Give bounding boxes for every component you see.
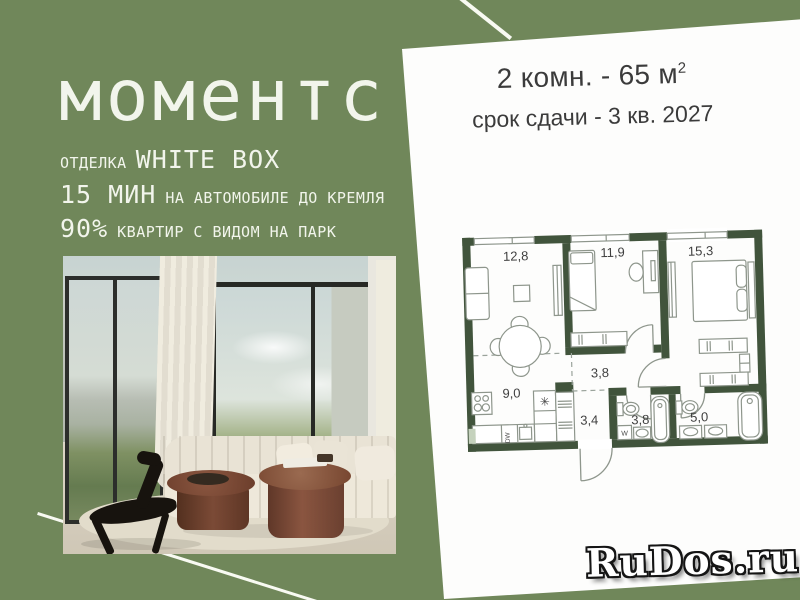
offer-panel-content: 2 комн. - 65 м2 срок сдачи - 3 кв. 2027 [398, 20, 800, 591]
ad-banner: моментс ОТДЕЛКА WHITE BOX 15 МИН НА АВТО… [0, 0, 800, 600]
feature-drive-time: 15 МИН НА АВТОМОБИЛЕ ДО КРЕМЛЯ [60, 180, 385, 209]
view-value: 90% [60, 214, 108, 243]
square-meter-sup: 2 [678, 60, 687, 77]
room-area-label: 11,9 [600, 244, 625, 260]
room-area-label: 3,8 [591, 365, 609, 380]
room-area-label: 15,3 [688, 243, 714, 259]
feature-park-view: 90% КВАРТИР С ВИДОМ НА ПАРК [60, 214, 336, 243]
finish-label: ОТДЕЛКА [60, 154, 127, 172]
room-area-label: 5,0 [690, 409, 708, 424]
drive-label: НА АВТОМОБИЛЕ ДО КРЕМЛЯ [165, 189, 384, 207]
finish-value: WHITE BOX [136, 145, 280, 174]
offer-deadline: срок сдачи - 3 кв. 2027 [400, 97, 800, 135]
view-label: КВАРТИР С ВИДОМ НА ПАРК [117, 223, 336, 241]
entry-opening [578, 439, 612, 450]
washer-label: W [621, 430, 628, 437]
photo-pillow [354, 445, 396, 481]
feature-finish: ОТДЕЛКА WHITE BOX [60, 145, 280, 174]
room-area-label: 12,8 [503, 248, 529, 264]
plan-zone-dashes [473, 352, 608, 394]
photo-door-frame [113, 276, 117, 524]
dishwasher-label: DW [505, 431, 512, 443]
brand-logo: моментс [59, 60, 386, 131]
decor-line-top [460, 0, 513, 40]
room-area-label: 3,4 [580, 412, 598, 427]
room-area-label: 3,8 [631, 412, 649, 427]
floor-plan: DW W ✳ 12,8 11,9 15,3 9,0 3,8 3,4 3,8 5,… [454, 213, 782, 502]
room-area-label: 9,0 [502, 385, 520, 400]
brand-block: моментс ОТДЕЛКА WHITE BOX 15 МИН НА АВТО… [59, 40, 449, 265]
offer-title: 2 комн. - 65 м2 [399, 54, 800, 97]
photo-decor-item [317, 454, 333, 462]
boiler-symbol: ✳ [540, 395, 550, 409]
interior-photo [63, 256, 396, 554]
photo-tray [187, 473, 229, 485]
photo-shadow [81, 538, 201, 550]
drive-value: 15 МИН [60, 180, 156, 209]
watermark: RuDos.ru [585, 535, 799, 587]
rooms-area-text: 2 комн. - 65 м [496, 58, 678, 94]
